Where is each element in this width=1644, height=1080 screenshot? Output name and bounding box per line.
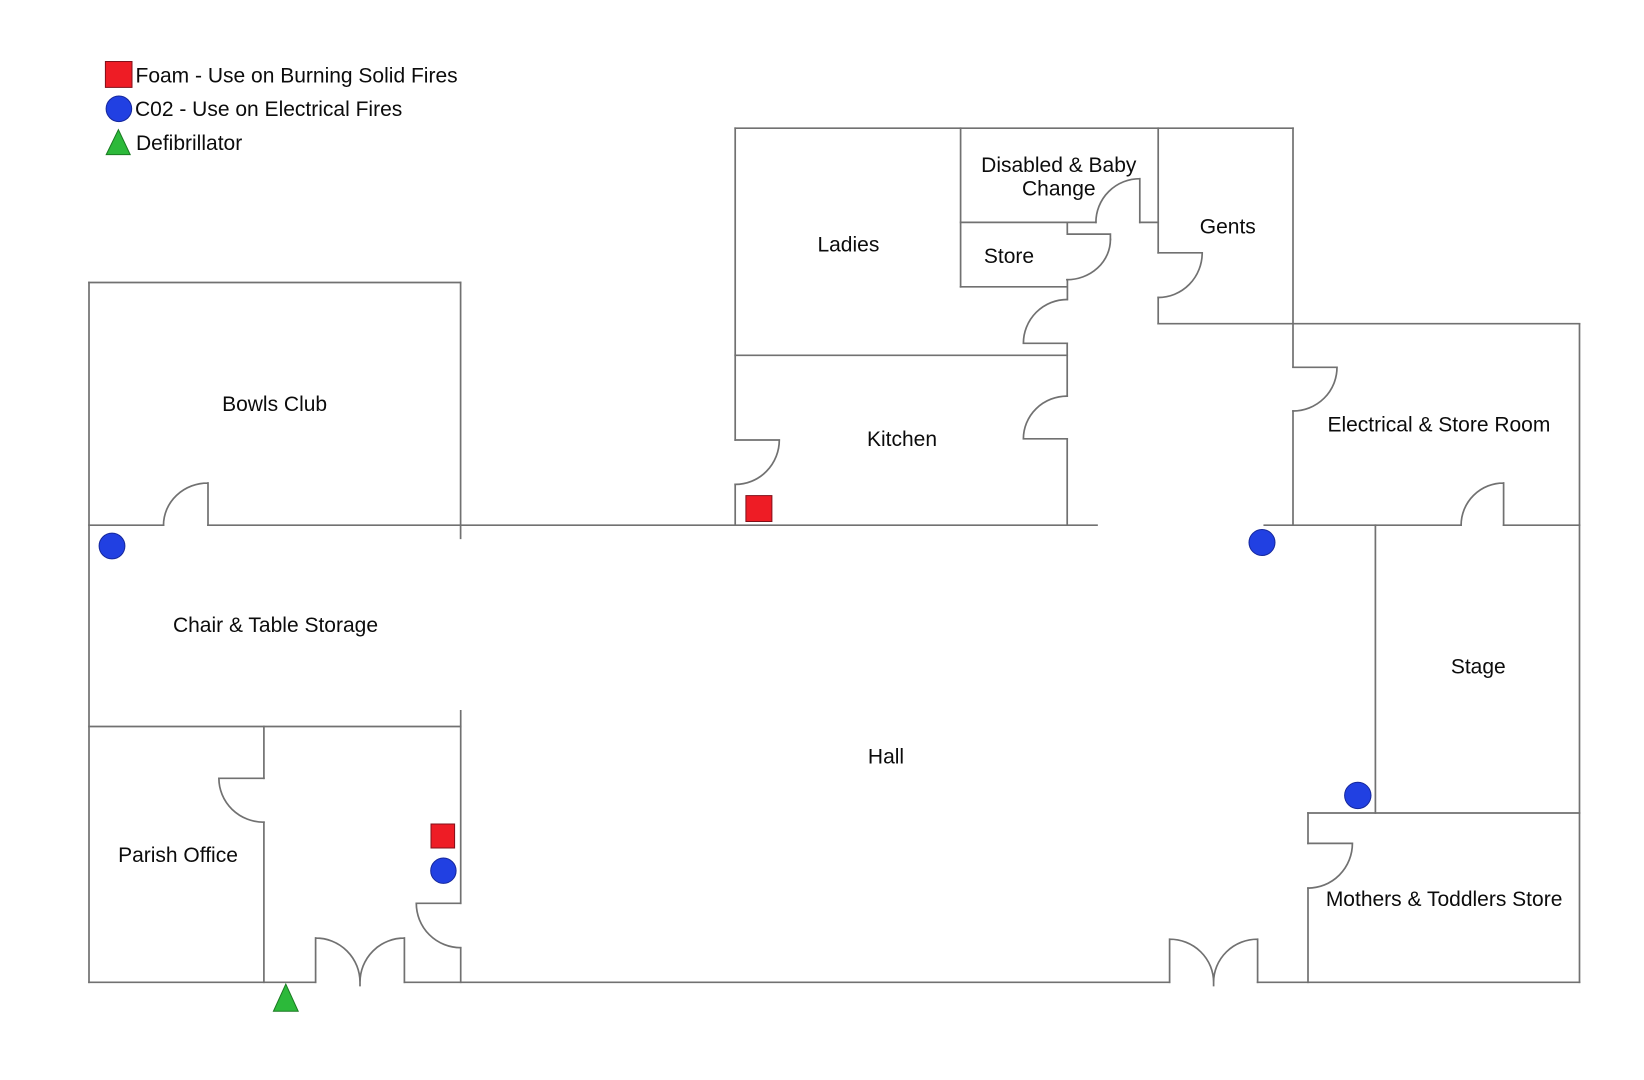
svg-text:Stage: Stage <box>1451 655 1506 678</box>
svg-text:Gents: Gents <box>1200 216 1256 239</box>
svg-text:Hall: Hall <box>868 745 904 768</box>
svg-text:Store: Store <box>984 245 1034 268</box>
svg-text:Ladies: Ladies <box>817 233 879 256</box>
svg-text:C02 - Use on Electrical Fires: C02 - Use on Electrical Fires <box>135 98 402 121</box>
svg-text:Bowls Club: Bowls Club <box>222 393 327 416</box>
svg-text:Disabled & Baby: Disabled & Baby <box>981 154 1137 177</box>
svg-text:Foam - Use on Burning Solid Fi: Foam - Use on Burning Solid Fires <box>136 64 458 87</box>
svg-text:Parish Office: Parish Office <box>118 844 238 867</box>
svg-text:Change: Change <box>1022 177 1096 200</box>
svg-text:Chair & Table Storage: Chair & Table Storage <box>173 614 378 637</box>
svg-text:Defibrillator: Defibrillator <box>136 132 242 155</box>
svg-text:Kitchen: Kitchen <box>867 428 937 451</box>
svg-text:Mothers & Toddlers Store: Mothers & Toddlers Store <box>1326 888 1563 911</box>
svg-text:Electrical & Store Room: Electrical & Store Room <box>1327 414 1550 437</box>
